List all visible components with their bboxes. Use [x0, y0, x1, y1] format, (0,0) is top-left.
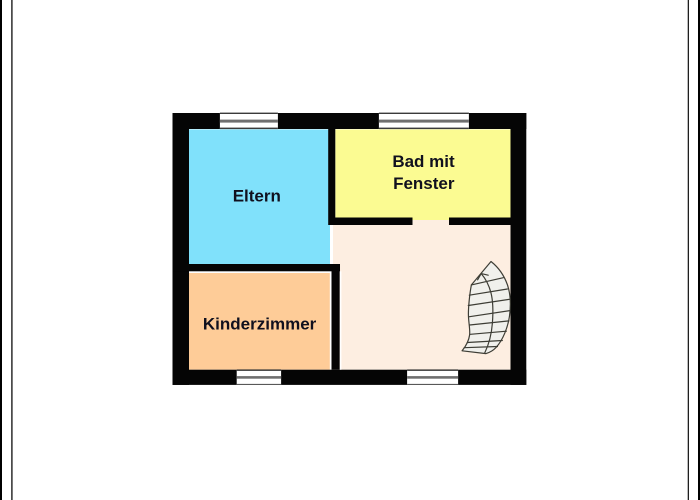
svg-text:Fenster: Fenster: [393, 174, 455, 193]
svg-text:Eltern: Eltern: [233, 187, 281, 206]
svg-text:Kinderzimmer: Kinderzimmer: [203, 315, 317, 334]
svg-text:Bad mit: Bad mit: [392, 152, 455, 171]
